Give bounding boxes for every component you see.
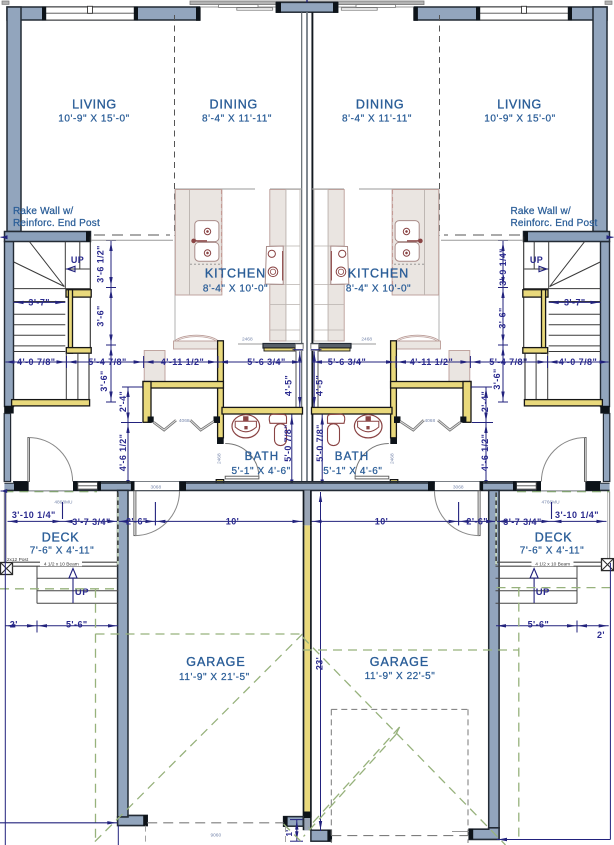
svg-text:Rake Wall w/: Rake Wall w/ — [13, 206, 73, 217]
svg-text:2'-4": 2'-4" — [118, 391, 128, 412]
svg-text:5'-0 7/8": 5'-0 7/8" — [283, 424, 293, 462]
svg-text:5'-6": 5'-6" — [66, 620, 88, 630]
svg-text:4068: 4068 — [424, 418, 435, 424]
svg-text:5'-4 7/8": 5'-4 7/8" — [489, 357, 527, 367]
svg-text:5'-6 3/4": 5'-6 3/4" — [328, 357, 366, 367]
svg-text:7'-6" X 4'-11": 7'-6" X 4'-11" — [30, 546, 95, 557]
svg-text:4'-6 1/2": 4'-6 1/2" — [118, 434, 128, 472]
svg-text:BATH: BATH — [245, 451, 280, 463]
svg-text:3'-7 3/4": 3'-7 3/4" — [503, 517, 541, 527]
svg-text:4 1/2 x 10 Beam: 4 1/2 x 10 Beam — [535, 562, 570, 568]
svg-text:3'-10 1/4": 3'-10 1/4" — [12, 510, 56, 520]
svg-text:8'-4" X 10'-0": 8'-4" X 10'-0" — [203, 284, 268, 295]
svg-text:KITCHEN: KITCHEN — [348, 267, 409, 281]
svg-text:4'-5": 4'-5" — [284, 375, 294, 396]
svg-text:3'-9 1/4": 3'-9 1/4" — [498, 248, 508, 286]
svg-text:3'-6": 3'-6" — [498, 307, 508, 328]
svg-text:DINING: DINING — [210, 98, 259, 112]
svg-text:7'-6" X 4'-11": 7'-6" X 4'-11" — [520, 546, 585, 557]
svg-text:4868MU: 4868MU — [54, 499, 73, 505]
svg-text:2468: 2468 — [216, 453, 222, 464]
svg-text:GARAGE: GARAGE — [186, 655, 246, 669]
svg-text:8'-4" X 11'-11": 8'-4" X 11'-11" — [342, 114, 412, 125]
svg-text:3'-7 3/4": 3'-7 3/4" — [72, 517, 110, 527]
svg-text:4766MU: 4766MU — [542, 499, 561, 505]
svg-text:5'-6 3/4": 5'-6 3/4" — [247, 357, 285, 367]
svg-text:5'-6": 5'-6" — [528, 620, 550, 630]
svg-text:10'-9" X 15'-0": 10'-9" X 15'-0" — [58, 114, 129, 125]
svg-text:5'-1" X 4'-6": 5'-1" X 4'-6" — [323, 466, 382, 477]
svg-text:GARAGE: GARAGE — [370, 655, 430, 669]
svg-text:4'-0 7/8": 4'-0 7/8" — [559, 357, 597, 367]
svg-text:Reinforc. End Post: Reinforc. End Post — [511, 218, 598, 229]
svg-text:2468: 2468 — [242, 336, 253, 342]
svg-text:11'-9" X 21'-5": 11'-9" X 21'-5" — [179, 672, 250, 683]
svg-text:3'-7": 3'-7" — [28, 298, 50, 308]
svg-text:DECK: DECK — [535, 531, 573, 545]
svg-text:LIVING: LIVING — [497, 98, 542, 112]
svg-text:4 1/2 x 10 Beam: 4 1/2 x 10 Beam — [44, 562, 79, 568]
svg-text:3'-6": 3'-6" — [492, 368, 502, 389]
svg-text:4'-0 7/8": 4'-0 7/8" — [17, 357, 55, 367]
svg-text:UP: UP — [536, 587, 550, 598]
svg-text:UP: UP — [71, 255, 84, 265]
svg-text:5'-0 7/8": 5'-0 7/8" — [315, 424, 325, 462]
svg-text:4'-11 1/2": 4'-11 1/2" — [161, 357, 204, 367]
svg-text:11'-9" X 22'-5": 11'-9" X 22'-5" — [365, 671, 436, 682]
svg-text:4'-6 1/2": 4'-6 1/2" — [480, 434, 490, 472]
svg-text:DECK: DECK — [42, 531, 80, 545]
svg-text:2'-6": 2'-6" — [466, 517, 488, 527]
svg-text:LIVING: LIVING — [72, 98, 117, 112]
svg-text:8'-4" X 11'-11": 8'-4" X 11'-11" — [202, 114, 272, 125]
svg-text:2468: 2468 — [361, 336, 372, 342]
svg-text:4'-11 1/2": 4'-11 1/2" — [410, 357, 453, 367]
svg-text:5'-4 7/8": 5'-4 7/8" — [88, 357, 126, 367]
svg-text:10'-9" X 15'-0": 10'-9" X 15'-0" — [484, 114, 555, 125]
svg-text:3'-10 1/4": 3'-10 1/4" — [555, 510, 599, 520]
svg-text:4068: 4068 — [179, 418, 190, 424]
svg-text:3'-6 1/2": 3'-6 1/2" — [96, 245, 106, 283]
svg-text:2468: 2468 — [390, 453, 396, 464]
svg-text:2': 2' — [10, 620, 18, 630]
svg-text:10': 10' — [226, 516, 240, 526]
svg-text:KITCHEN: KITCHEN — [205, 267, 266, 281]
svg-text:UP: UP — [530, 255, 543, 265]
svg-text:23': 23' — [315, 657, 325, 670]
svg-text:9060: 9060 — [210, 832, 221, 838]
svg-text:8'-4" X 10'-0": 8'-4" X 10'-0" — [346, 284, 411, 295]
svg-text:3'-6": 3'-6" — [99, 370, 109, 391]
svg-text:3'-7": 3'-7" — [564, 298, 586, 308]
svg-text:DINING: DINING — [356, 98, 405, 112]
svg-text:3068: 3068 — [453, 484, 464, 490]
svg-text:5'-1" X 4'-6": 5'-1" X 4'-6" — [231, 466, 290, 477]
svg-text:3'-6": 3'-6" — [96, 305, 106, 326]
svg-text:2'-6": 2'-6" — [126, 517, 148, 527]
svg-text:2': 2' — [597, 630, 605, 640]
svg-text:10': 10' — [375, 516, 389, 526]
svg-text:Reinforc. End Post: Reinforc. End Post — [13, 218, 100, 229]
svg-text:BATH: BATH — [335, 451, 370, 463]
svg-text:3068: 3068 — [150, 484, 161, 490]
svg-text:2'-4": 2'-4" — [480, 391, 490, 412]
svg-text:4'-5": 4'-5" — [315, 375, 325, 396]
svg-text:Rake Wall w/: Rake Wall w/ — [511, 206, 571, 217]
